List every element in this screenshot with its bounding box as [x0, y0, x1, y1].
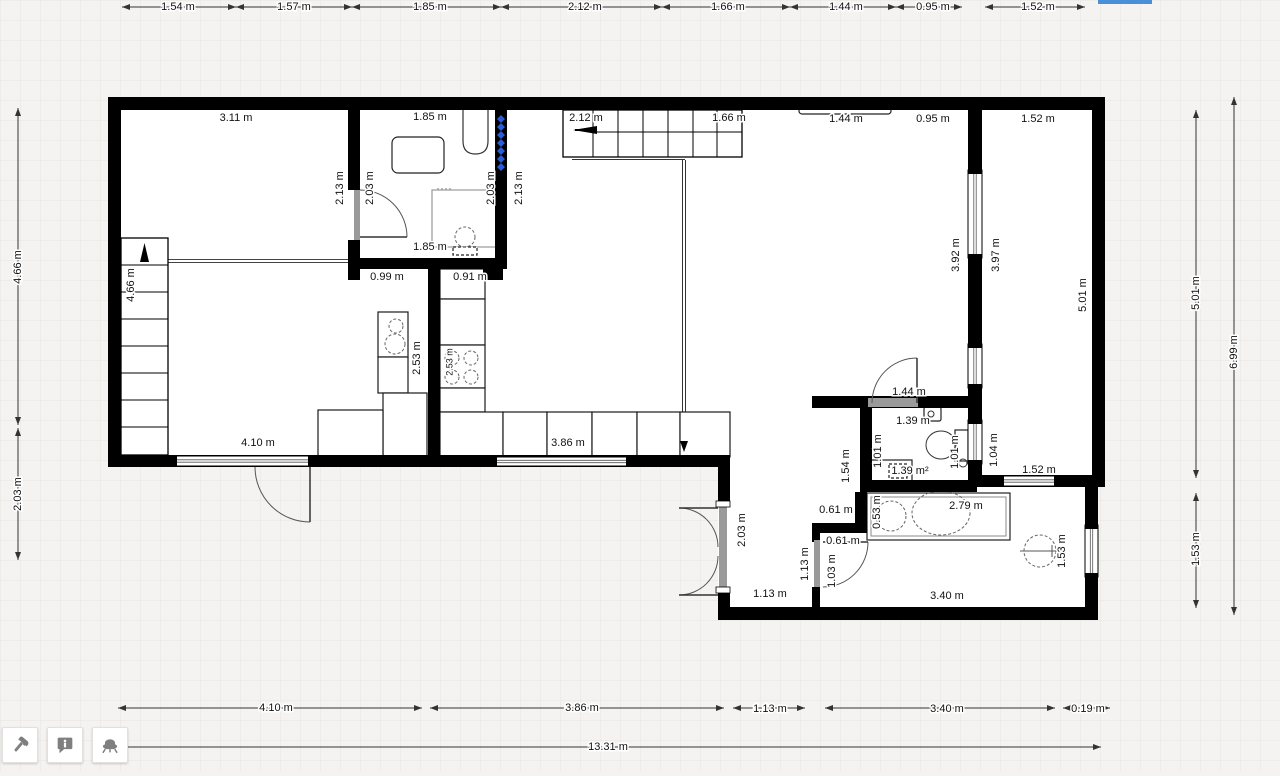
dimension-label: 2.53 m: [411, 341, 423, 375]
dimension-label: 5.01 m: [1077, 278, 1089, 312]
info-bubble-icon: [54, 734, 76, 756]
selection-highlight-bar: [1098, 0, 1152, 4]
hammer-icon: [9, 734, 31, 756]
dimension-label: 1.13 m: [799, 547, 811, 581]
dimension-label: 3.86 m: [551, 437, 585, 449]
dimension-label: 1.54 m: [840, 449, 852, 483]
dimension-label: 6.99 m: [1228, 335, 1240, 369]
dimension-label: 3.86 m: [565, 702, 599, 714]
dimension-label: 5.01 m: [1190, 276, 1202, 310]
floorplan-drawing[interactable]: 1.54 m1.57 m1.85 m2.12 m1.66 m1.44 m0.95…: [0, 0, 1280, 771]
dimension-label: 1.53 m: [1056, 534, 1068, 568]
dimension-label: 1.39 m: [896, 415, 930, 427]
dimension-label: 2.13 m: [334, 171, 346, 205]
annotation-tool-button[interactable]: [47, 727, 83, 763]
dimension-label: 0.53 m: [871, 495, 883, 529]
dimension-label: 1.66 m: [712, 112, 746, 124]
dimension-label: 1.52 m: [1021, 113, 1055, 125]
dimension-label: 0.91 m: [453, 271, 487, 283]
dimension-label: 2.13 m: [513, 171, 525, 205]
dimension-label: 2.12 m: [568, 1, 602, 13]
dimension-label: 2.03 m: [364, 171, 376, 205]
dimension-label: 0.99 m: [370, 271, 404, 283]
dimension-label: 3.97 m: [990, 238, 1002, 272]
dimension-label: 0.61 m: [826, 535, 860, 547]
dimension-label: 13.31 m: [588, 741, 628, 753]
dimension-label: 1.01 m: [949, 435, 961, 469]
dimension-label: 1.44 m: [829, 1, 863, 13]
dimension-label: 1.03 m: [826, 554, 838, 588]
dimension-label: 2.03 m: [736, 513, 748, 547]
dimension-label: 3.92 m: [950, 238, 962, 272]
dimension-label: 1.04 m: [988, 433, 1000, 467]
dimension-label: 0.61 m: [819, 504, 853, 516]
dimension-label: 4.66 m: [125, 268, 137, 302]
dimension-label: 2.12 m: [569, 112, 603, 124]
dimension-label: 0.95 m: [916, 113, 950, 125]
dimension-label: 0.95 m: [916, 1, 950, 13]
floorplan-canvas[interactable]: 1.54 m1.57 m1.85 m2.12 m1.66 m1.44 m0.95…: [0, 0, 1280, 771]
dimension-label: 3.11 m: [220, 112, 253, 124]
dimension-label: 4.66 m: [12, 250, 24, 284]
dimension-label: 1.53 m: [1190, 532, 1202, 566]
dimension-label: 3.40 m: [930, 590, 964, 602]
dimension-label: 1.85 m: [413, 1, 447, 13]
dimension-label: 1.52 m: [1021, 1, 1055, 13]
dimension-label: 4.10 m: [241, 437, 275, 449]
dimension-label: 1.39 m²: [891, 465, 929, 477]
dimension-label: 0.19 m: [1071, 703, 1105, 715]
dimension-label: 1.85 m: [413, 111, 447, 123]
dimension-label: 4.10 m: [259, 702, 293, 714]
dimension-label: 1.57 m: [277, 1, 311, 13]
dimension-label: 1.54 m: [161, 1, 195, 13]
chair-icon: [99, 734, 121, 756]
dimension-label: 1.01 m: [872, 434, 884, 468]
dimension-label: 3.40 m: [930, 703, 964, 715]
dimension-label: 2.79 m: [949, 500, 983, 512]
dimension-label: 1.13 m: [753, 588, 787, 600]
dimension-label: 1.13 m: [753, 703, 787, 715]
build-tool-button[interactable]: [2, 727, 38, 763]
dimension-label: 2.03 m: [485, 171, 497, 205]
dimension-label: 1.66 m: [711, 1, 745, 13]
dimension-label: 2.53 m: [444, 348, 454, 376]
dimension-label: 1.85 m: [413, 241, 447, 253]
dimension-label: 1.44 m: [892, 386, 926, 398]
dimension-label: 1.44 m: [829, 113, 863, 125]
bottom-toolbar: [2, 727, 128, 763]
furniture-tool-button[interactable]: [92, 727, 128, 763]
dimension-label: 1.52 m: [1022, 464, 1056, 476]
dimension-label: 2.03 m: [12, 477, 24, 511]
